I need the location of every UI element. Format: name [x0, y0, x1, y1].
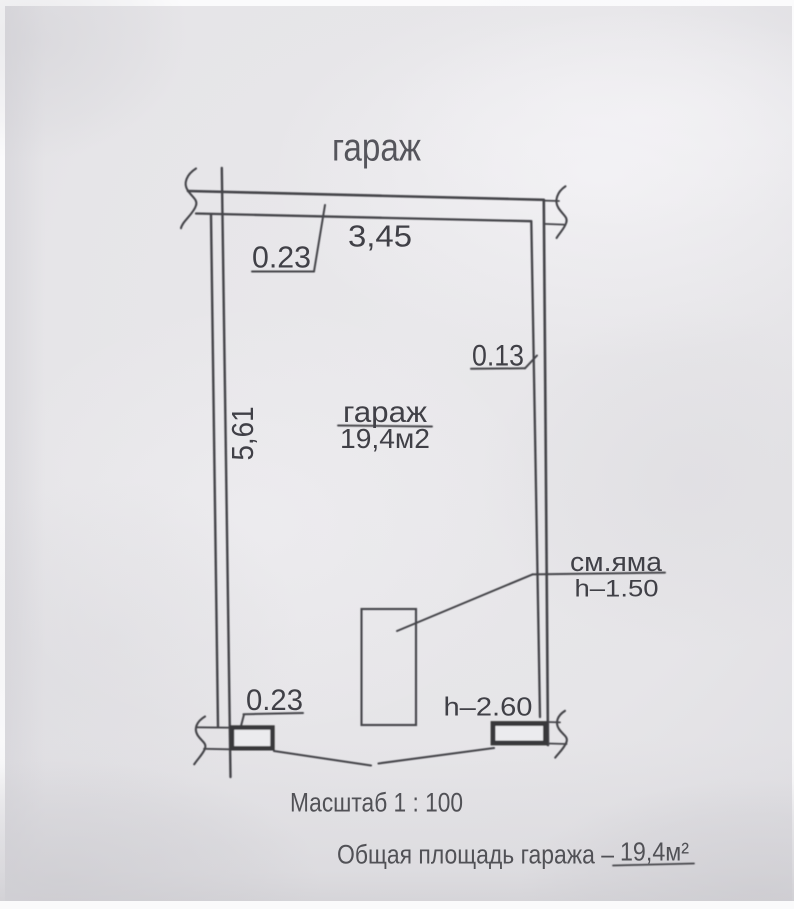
svg-text:0.23: 0.23: [246, 684, 303, 717]
svg-text:0.13: 0.13: [472, 340, 524, 373]
svg-text:h–2.60: h–2.60: [444, 692, 533, 722]
svg-text:0.23: 0.23: [252, 240, 311, 275]
svg-text:Масштаб 1 : 100: Масштаб 1 : 100: [290, 788, 463, 818]
svg-text:19,4м2: 19,4м2: [340, 423, 430, 454]
svg-text:Общая площадь гаража –: Общая площадь гаража –: [337, 840, 614, 870]
svg-text:3,45: 3,45: [348, 219, 412, 254]
svg-text:h–1.50: h–1.50: [575, 576, 659, 603]
svg-text:гараж: гараж: [332, 127, 421, 170]
svg-text:см.яма: см.яма: [570, 547, 663, 577]
svg-text:19,4м²: 19,4м²: [620, 837, 689, 867]
svg-text:5,61: 5,61: [225, 407, 260, 461]
